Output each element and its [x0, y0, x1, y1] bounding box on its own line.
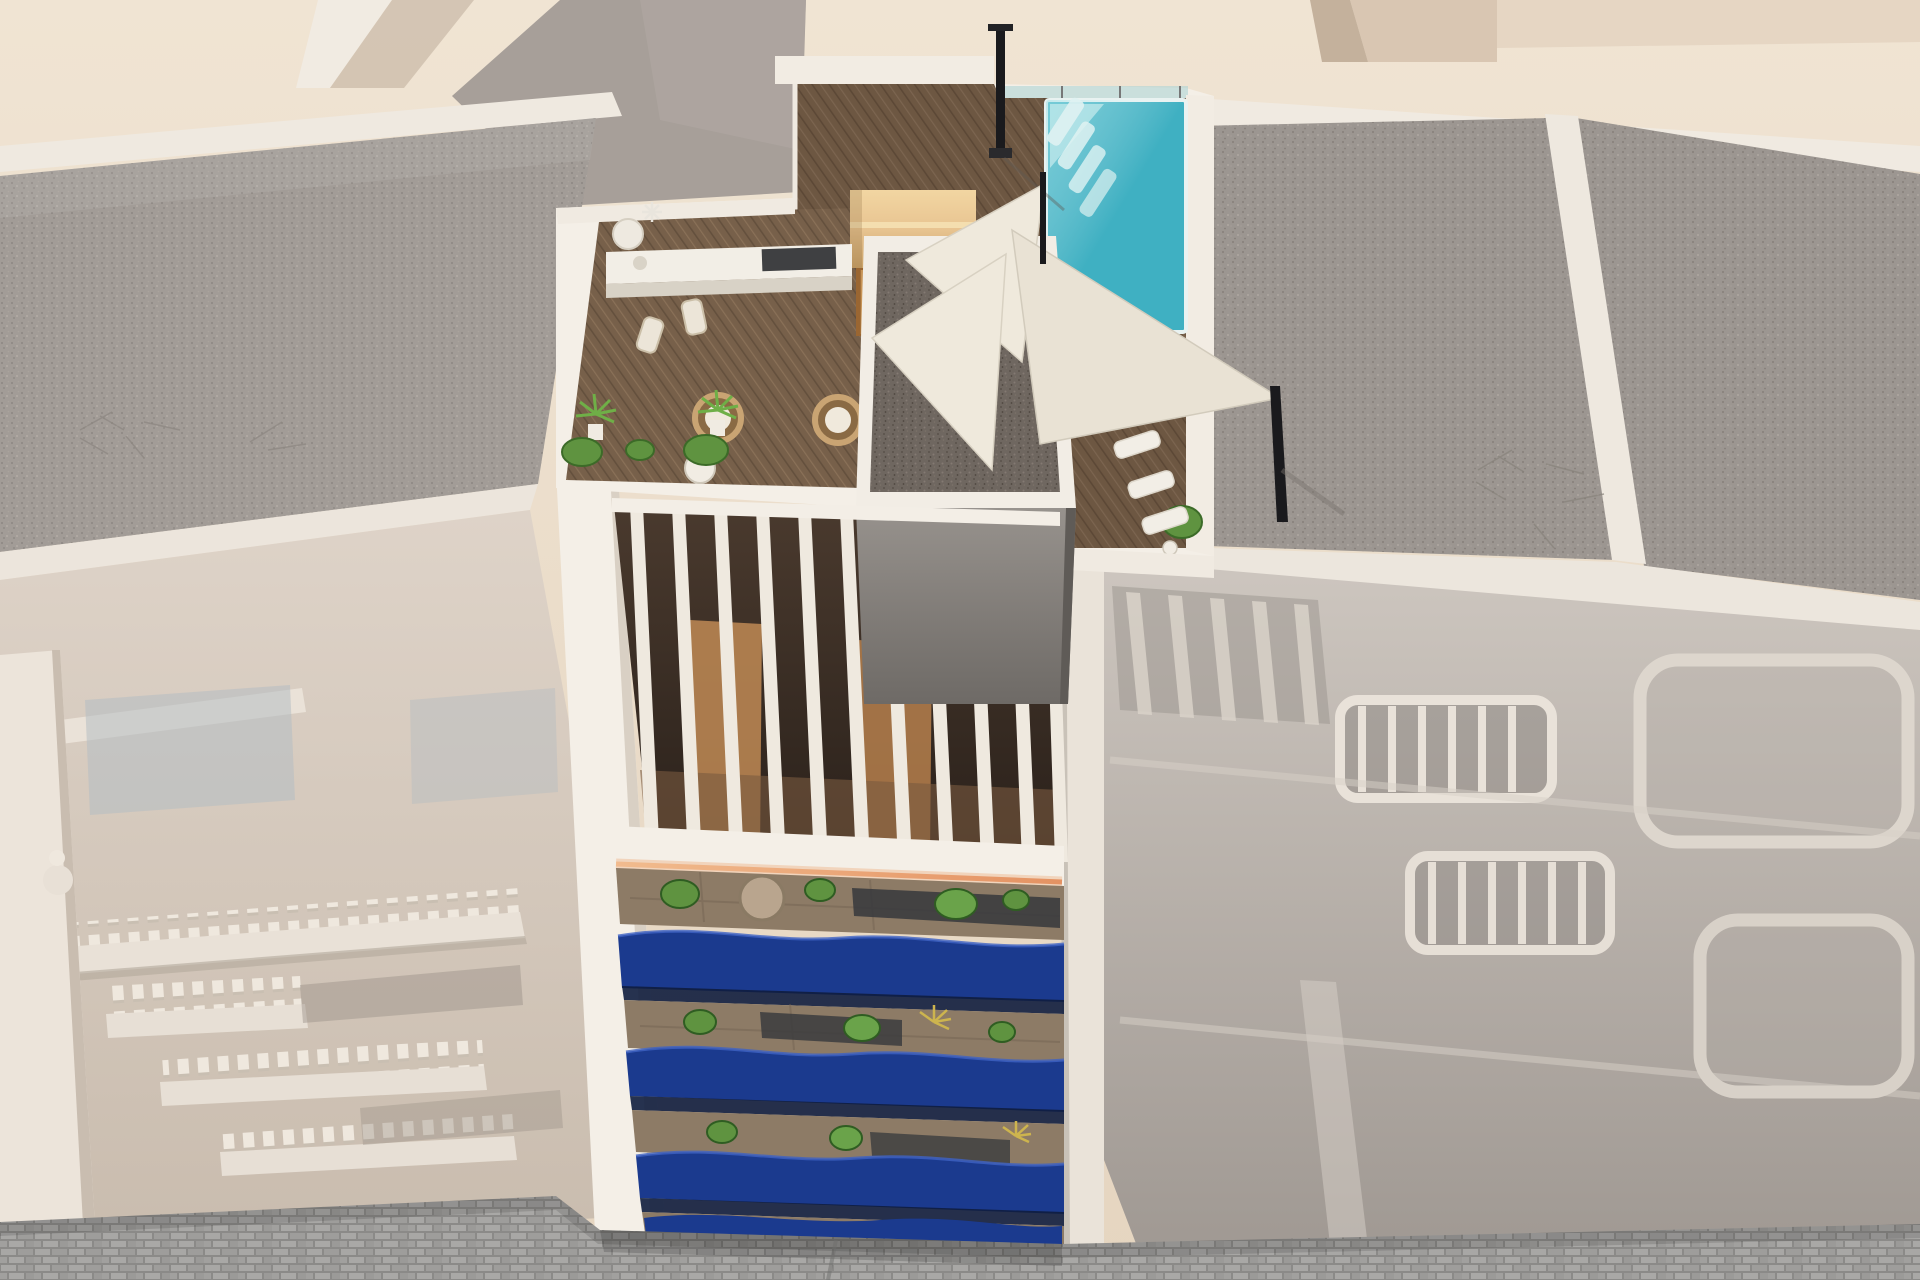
left-facade-terrace-recess-2	[410, 688, 558, 804]
left-pillar-finial-top	[49, 850, 65, 866]
aerial-render	[0, 0, 1920, 1280]
shower-base	[989, 148, 1012, 158]
balcony-round-table	[740, 876, 784, 920]
topright-wall-block	[1350, 0, 1497, 62]
parapet-bush-3	[684, 435, 728, 465]
pool-glass-fence	[998, 86, 1188, 98]
render-canvas	[0, 0, 1920, 1280]
rooftop-right-parapet	[1186, 95, 1214, 556]
topright-wall-far	[1497, 0, 1920, 48]
parapet-bush-2	[626, 440, 654, 460]
penthouse-pergola-level	[612, 498, 1076, 868]
left-facade-terrace-recess-1	[85, 685, 295, 815]
right-building	[1104, 98, 1920, 1280]
shower-head-bar	[988, 24, 1013, 31]
core-wall-lower	[856, 508, 1076, 704]
planter-pot-2	[710, 420, 725, 436]
right-roof-gravel-a	[1196, 118, 1616, 560]
planter-pot-1	[588, 424, 603, 440]
kitchen-sink	[633, 256, 647, 270]
lounger-side-table	[1163, 541, 1177, 555]
left-pillar-finial	[43, 865, 73, 895]
sail-pole-1	[1040, 172, 1046, 264]
egg-chair-2	[815, 397, 861, 443]
kitchen-grill	[762, 247, 837, 272]
kitchen-star-decor	[642, 202, 662, 222]
sauna-roof-ridge	[850, 222, 976, 228]
pool-top-parapet	[775, 56, 994, 84]
right-rounded-balcony-2	[1700, 920, 1908, 1092]
kitchen-side-table	[613, 219, 643, 249]
parapet-bush-1	[562, 438, 602, 466]
